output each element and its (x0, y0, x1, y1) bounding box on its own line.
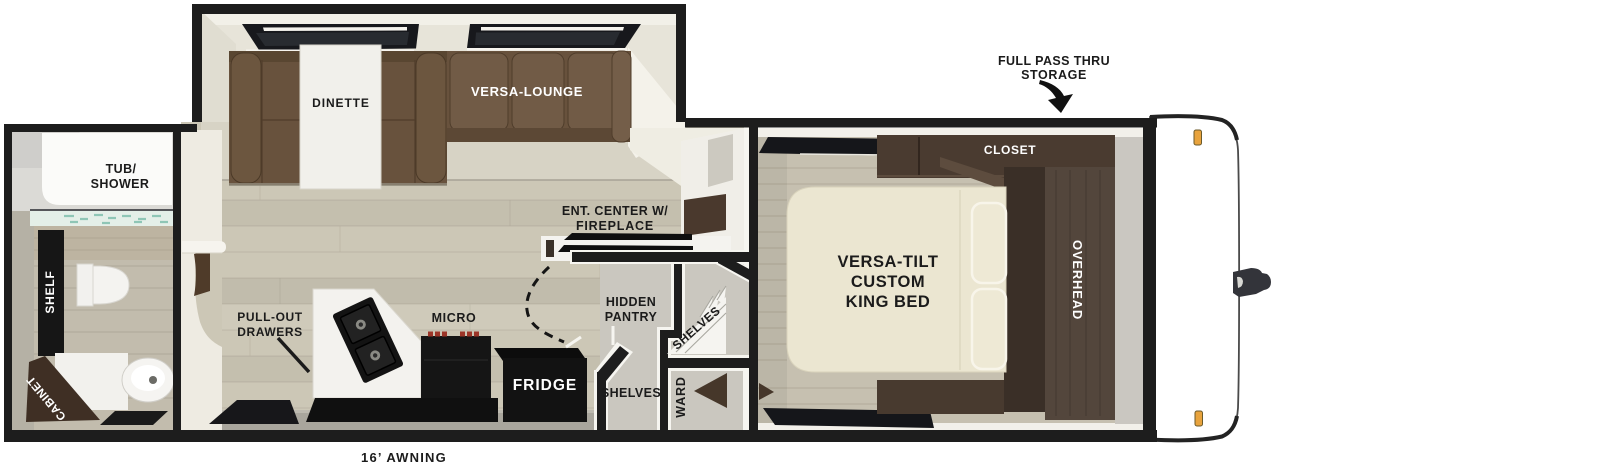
svg-text:HIDDEN: HIDDEN (606, 295, 656, 309)
svg-text:TUB/: TUB/ (106, 162, 137, 176)
svg-text:DINETTE: DINETTE (312, 96, 370, 110)
svg-text:SHELVES: SHELVES (601, 386, 661, 400)
svg-text:CUSTOM: CUSTOM (851, 273, 925, 291)
svg-text:SHELF: SHELF (43, 270, 57, 313)
svg-text:MICRO: MICRO (432, 311, 477, 325)
svg-text:CLOSET: CLOSET (984, 143, 1036, 157)
svg-text:VERSA-TILT: VERSA-TILT (838, 253, 939, 271)
svg-text:VERSA-LOUNGE: VERSA-LOUNGE (471, 84, 583, 99)
svg-text:FULL PASS THRU: FULL PASS THRU (998, 54, 1110, 68)
svg-text:PANTRY: PANTRY (605, 310, 658, 324)
svg-text:OVERHEAD: OVERHEAD (1070, 240, 1085, 320)
svg-text:FRIDGE: FRIDGE (513, 377, 578, 394)
svg-text:DRAWERS: DRAWERS (237, 325, 303, 339)
svg-text:SHOWER: SHOWER (91, 177, 150, 191)
svg-text:WARD: WARD (674, 376, 688, 417)
svg-text:STORAGE: STORAGE (1021, 68, 1087, 82)
svg-text:PULL-OUT: PULL-OUT (237, 310, 303, 324)
svg-text:ENT. CENTER W/: ENT. CENTER W/ (562, 204, 668, 218)
svg-text:FIREPLACE: FIREPLACE (576, 219, 654, 233)
svg-text:16’ AWNING: 16’ AWNING (361, 450, 447, 462)
svg-text:KING BED: KING BED (846, 293, 931, 311)
